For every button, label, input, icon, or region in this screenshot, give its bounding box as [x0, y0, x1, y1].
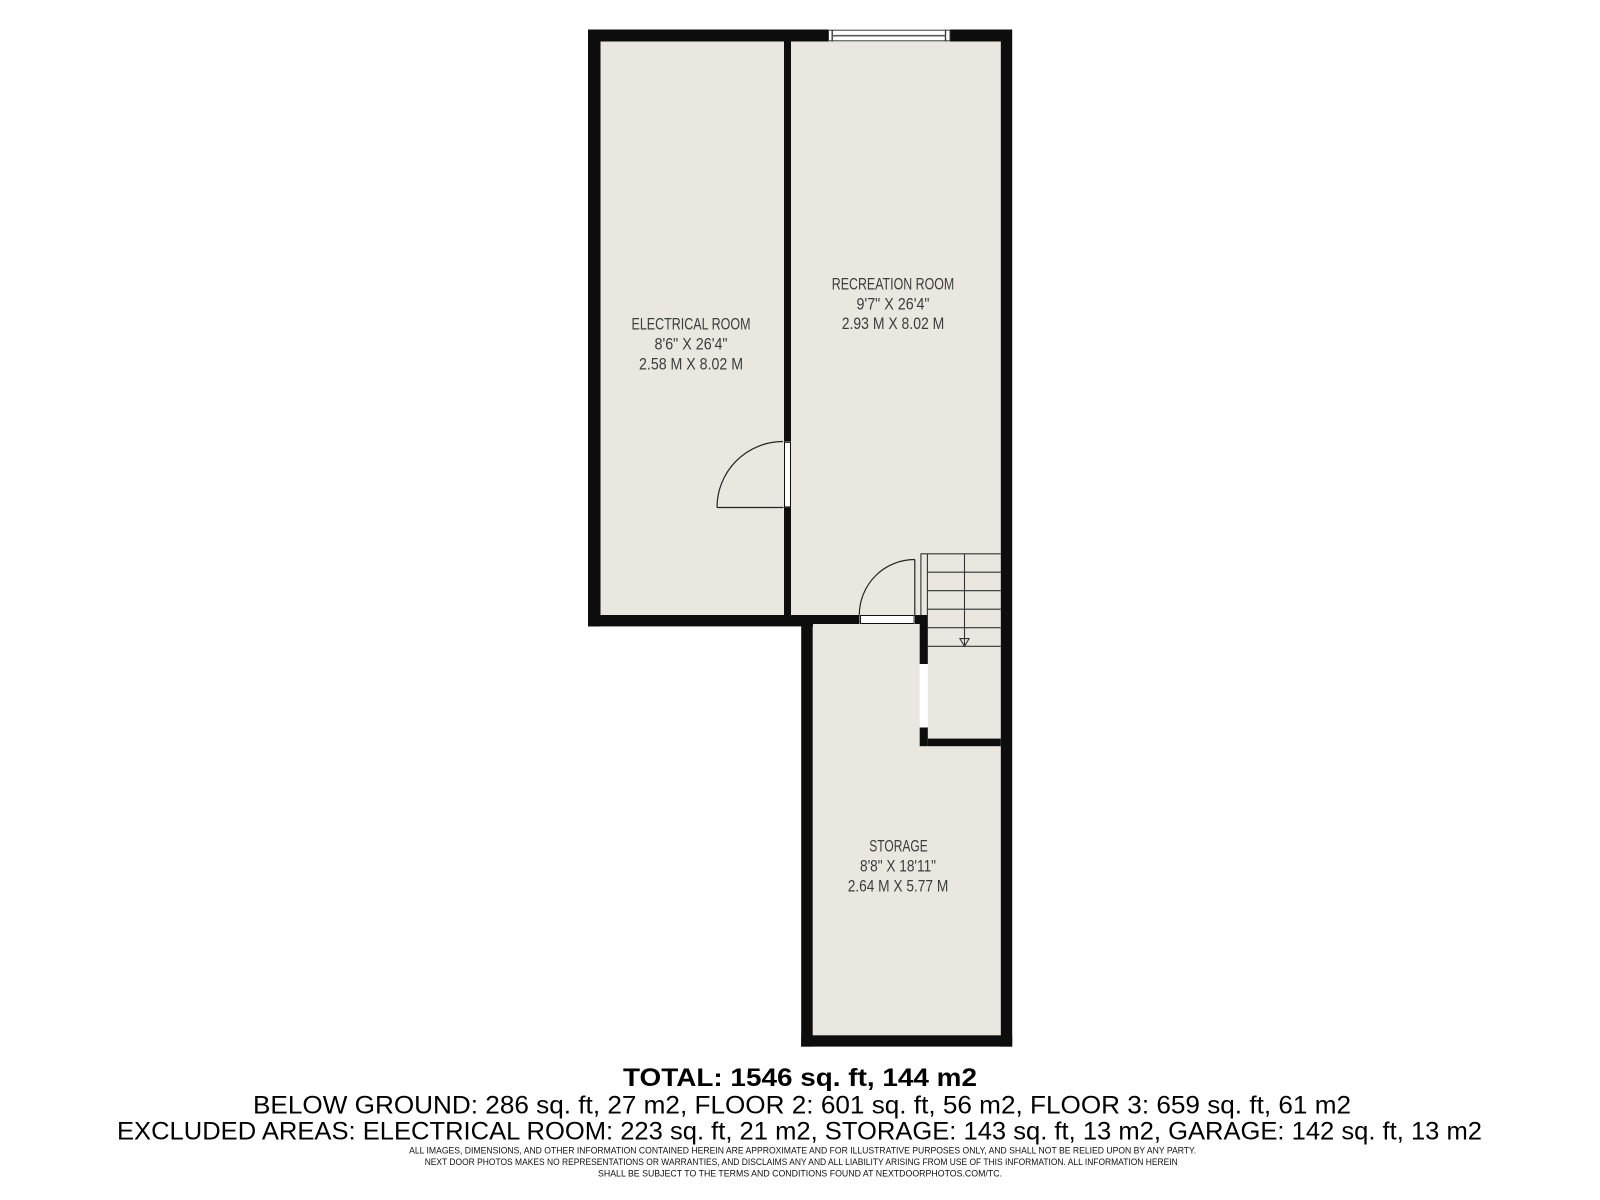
svg-text:SHALL BE SUBJECT TO THE TERMS: SHALL BE SUBJECT TO THE TERMS AND CONDIT… [598, 1169, 1002, 1179]
svg-text:8'6" X 26'4": 8'6" X 26'4" [655, 335, 728, 353]
svg-text:2.64 M X 5.77 M: 2.64 M X 5.77 M [848, 877, 949, 895]
svg-text:NEXT DOOR PHOTOS MAKES NO REPR: NEXT DOOR PHOTOS MAKES NO REPRESENTATION… [425, 1157, 1178, 1167]
svg-text:9'7" X 26'4": 9'7" X 26'4" [857, 295, 930, 313]
svg-text:EXCLUDED AREAS: ELECTRICAL ROO: EXCLUDED AREAS: ELECTRICAL ROOM: 223 sq.… [117, 1118, 1482, 1146]
svg-text:STORAGE: STORAGE [869, 838, 928, 856]
svg-text:RECREATION ROOM: RECREATION ROOM [832, 275, 955, 293]
svg-text:ELECTRICAL ROOM: ELECTRICAL ROOM [632, 315, 751, 333]
svg-text:ALL IMAGES, DIMENSIONS, AND OT: ALL IMAGES, DIMENSIONS, AND OTHER INFORM… [409, 1146, 1196, 1156]
svg-text:2.93 M X 8.02 M: 2.93 M X 8.02 M [842, 315, 945, 333]
svg-text:BELOW GROUND: 286 sq. ft, 27 m: BELOW GROUND: 286 sq. ft, 27 m2, FLOOR 2… [253, 1092, 1351, 1120]
svg-text:TOTAL: 1546 sq. ft, 144 m2: TOTAL: 1546 sq. ft, 144 m2 [623, 1064, 977, 1092]
svg-text:8'8" X 18'11": 8'8" X 18'11" [860, 858, 936, 876]
svg-text:2.58 M X 8.02 M: 2.58 M X 8.02 M [639, 355, 743, 373]
